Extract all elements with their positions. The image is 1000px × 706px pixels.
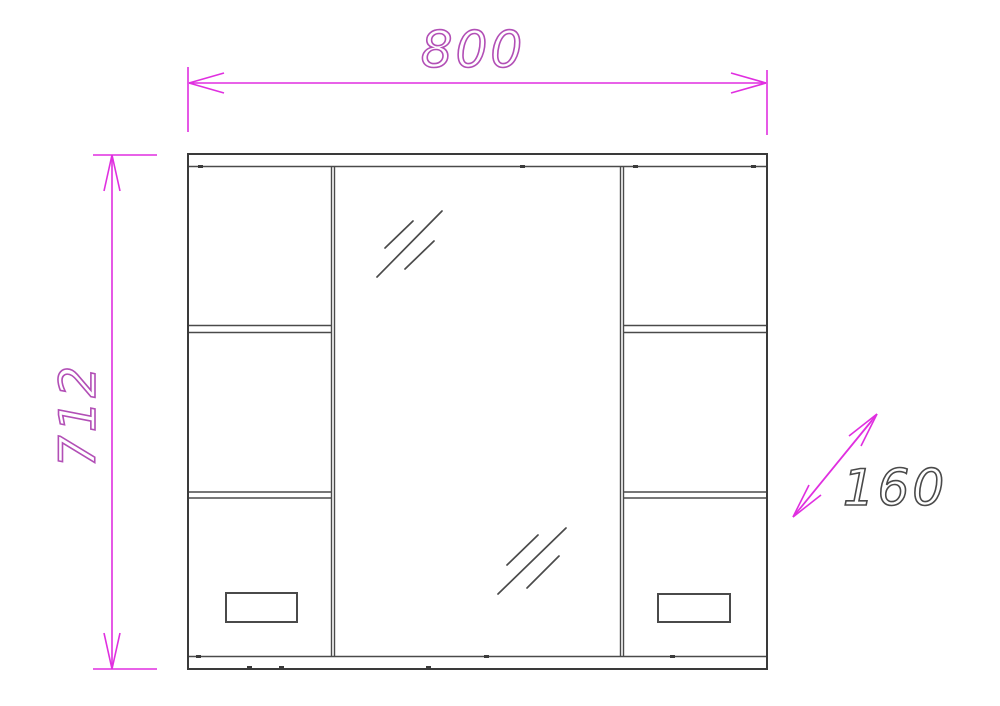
tick-mark <box>670 655 675 658</box>
cabinet-outline <box>188 154 767 669</box>
dimension-lines <box>93 67 877 669</box>
bottom-niches <box>226 593 730 622</box>
height-arrowhead-top <box>112 155 120 191</box>
width-dimension-label: 800 <box>421 21 525 79</box>
tick-mark <box>633 165 638 168</box>
mirror-cabinet-drawing: 800 712 160 <box>0 0 1000 706</box>
tick-mark <box>196 655 201 658</box>
width-arrowhead-right <box>731 83 766 93</box>
technical-drawing-canvas: 800 712 160 <box>0 0 1000 706</box>
tick-mark <box>751 165 756 168</box>
height-arrowhead-top <box>104 155 112 191</box>
right-niche-opening <box>658 594 730 622</box>
tick-mark <box>484 655 489 658</box>
tick-mark <box>247 666 252 669</box>
height-arrowhead-bottom <box>112 633 120 669</box>
width-arrowhead-left <box>189 73 224 83</box>
mirror-hatch-top-long <box>377 211 442 277</box>
cabinet-body <box>188 154 767 669</box>
tick-mark <box>198 165 203 168</box>
mirror-hatch-marks <box>377 211 566 594</box>
tick-mark <box>520 165 525 168</box>
left-niche-opening <box>226 593 297 622</box>
height-dimension-label: 712 <box>49 363 107 467</box>
width-arrowhead-left <box>189 83 224 93</box>
height-arrowhead-bottom <box>104 633 112 669</box>
cabinet-inner-structure <box>189 167 766 657</box>
depth-arrowhead-lower <box>793 495 821 517</box>
width-arrowhead-right <box>731 73 766 83</box>
tick-mark <box>279 666 284 669</box>
depth-dimension-label: 160 <box>843 459 947 517</box>
tick-mark <box>426 666 431 669</box>
